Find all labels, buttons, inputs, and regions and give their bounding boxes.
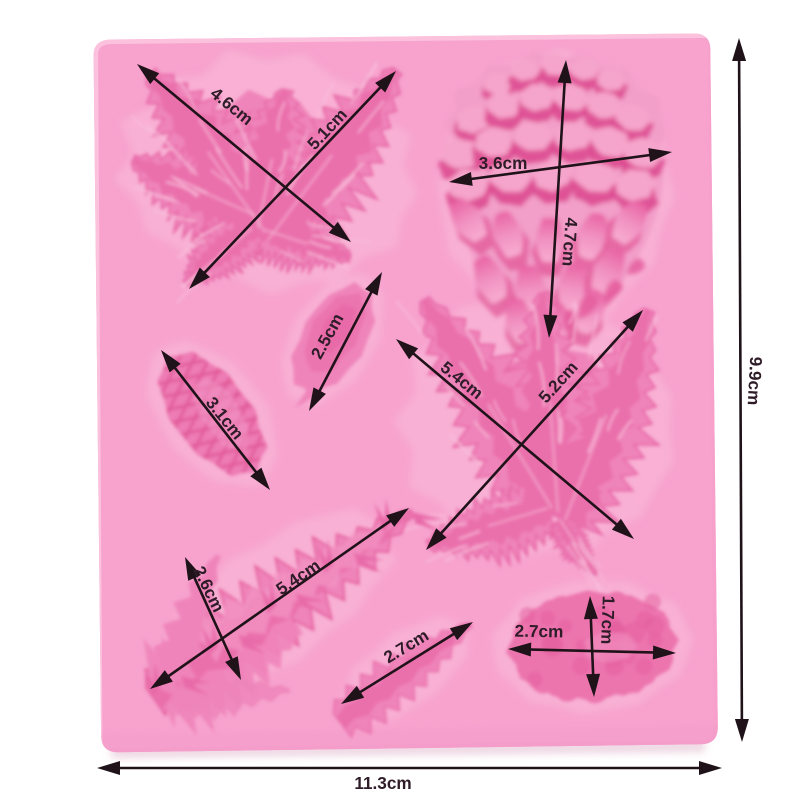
svg-text:11.3cm: 11.3cm xyxy=(354,773,411,793)
svg-text:3.6cm: 3.6cm xyxy=(479,153,528,173)
svg-text:4.7cm: 4.7cm xyxy=(558,217,581,267)
svg-text:2.7cm: 2.7cm xyxy=(514,621,563,642)
svg-text:1.7cm: 1.7cm xyxy=(597,595,619,644)
svg-text:9.9cm: 9.9cm xyxy=(744,356,767,406)
